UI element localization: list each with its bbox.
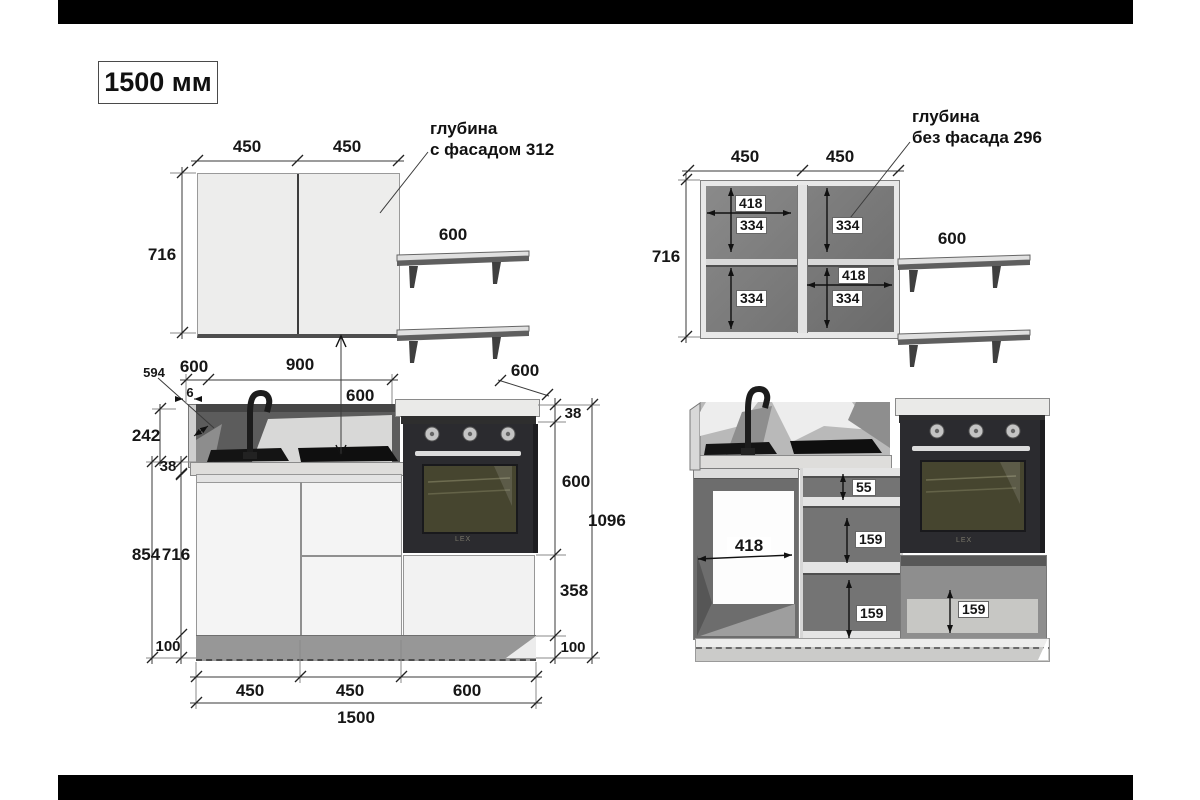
drawer-rail-1: [803, 468, 900, 478]
oven-column-countertop: [395, 399, 540, 417]
dim-wall-width-left: 450: [222, 138, 272, 156]
center-divider: [797, 185, 808, 333]
door-gap-vertical: [300, 482, 302, 636]
oven-open-drawer: [900, 555, 1047, 640]
dim-wall-open-width-right: 450: [815, 148, 865, 166]
oven-front: [403, 424, 538, 553]
dim-shelf-width: 600: [428, 226, 478, 244]
dim-counter-thickness: 38: [155, 459, 181, 475]
dim-base-width-1: 450: [225, 682, 275, 700]
dim-oven-counter-thickness: 38: [559, 406, 587, 422]
oven-column-countertop-open: [895, 398, 1050, 416]
note-line2: без фасада 296: [912, 128, 1042, 147]
note-depth-with-facade: глубина с фасадом 312: [430, 118, 554, 161]
note-depth-without-facade: глубина без фасада 296: [912, 106, 1042, 149]
dim-drawer-zone-height: 358: [554, 582, 594, 600]
base-cabinet-closed: [196, 474, 402, 637]
oven-handle: [415, 451, 521, 456]
oven-front-open-view: [900, 420, 1045, 553]
oven-window: [920, 460, 1026, 532]
top-rail: [197, 475, 401, 483]
dim-apron-height: 242: [128, 427, 164, 445]
dim-gap: 6: [183, 386, 197, 400]
dim-hang-height: 600: [346, 387, 390, 405]
dim-plinth-height-right: 100: [558, 640, 588, 656]
oven-handle: [912, 446, 1030, 451]
dim-total-width: 1500: [326, 709, 386, 727]
dim-inner-width-top-left: 418: [735, 195, 766, 212]
dim-drawer-2-height: 159: [856, 605, 887, 622]
wall-cabinet-closed: [197, 173, 400, 338]
title-box: 1500 мм: [98, 61, 218, 104]
plinth-open-view: [695, 638, 1050, 662]
note-line1: глубина: [430, 119, 497, 138]
dim-oven-height: 600: [556, 473, 596, 491]
splashback-open-view: [700, 402, 890, 455]
dim-total-height-right: 1096: [588, 512, 636, 530]
dim-base-width-3: 600: [442, 682, 492, 700]
dim-depth-left: 600: [172, 358, 216, 376]
drawer-rail-3: [803, 562, 900, 575]
wall-cabinet-open: [700, 180, 900, 339]
top-border-bar: [58, 0, 1133, 24]
splashback: [196, 404, 400, 462]
plinth-lower-strip: [696, 647, 1049, 661]
dim-wall-height: 716: [144, 246, 180, 264]
oven-window: [422, 464, 518, 534]
sink-cabinet-top-rail: [694, 469, 798, 479]
dim-inner-height-top-left: 334: [736, 217, 767, 234]
bottom-border-bar: [58, 775, 1133, 800]
oven-brand-label: LEX: [455, 536, 471, 543]
dim-top-gap: 55: [852, 479, 876, 496]
under-cabinet-shadow: [196, 404, 400, 412]
dim-shelf-width-open: 600: [927, 230, 977, 248]
kitchen-drawing-canvas: 1500 мм LEX: [0, 0, 1200, 800]
drawer-rail-2: [803, 497, 900, 508]
dim-carcass-height: 716: [158, 546, 194, 564]
title-text: 1500 мм: [104, 67, 212, 98]
dim-plinth-height-left: 100: [153, 639, 183, 655]
dim-inner-height-top-right: 334: [832, 217, 863, 234]
dim-drawer-1-height: 159: [855, 531, 886, 548]
dim-oven-drawer-height: 159: [958, 601, 989, 618]
drawer-shadow: [901, 556, 1046, 566]
dim-inner-width-bottom-right: 418: [838, 267, 869, 284]
oven-bottom-drawer-front: [403, 555, 535, 637]
dim-inner-height-bottom-right: 334: [832, 290, 863, 307]
dim-wall-open-height: 716: [648, 248, 684, 266]
dim-wall-width-right: 450: [322, 138, 372, 156]
door-gap: [297, 174, 299, 334]
door-gap-horizontal: [302, 555, 401, 557]
dim-apron-width: 900: [275, 356, 325, 374]
dim-base-width-2: 450: [325, 682, 375, 700]
plinth-closed: [196, 635, 536, 661]
dim-sink-cabinet-inner-width: 418: [727, 537, 771, 555]
oven-column-shadow-strip: [401, 416, 536, 424]
dim-inner-height-bottom-left: 334: [736, 290, 767, 307]
note-line2: с фасадом 312: [430, 140, 554, 159]
dim-side-panel-depth: 594: [137, 366, 171, 380]
dim-wall-open-width-left: 450: [720, 148, 770, 166]
oven-brand-label: LEX: [956, 537, 972, 544]
dim-oven-counter-depth: 600: [503, 362, 547, 380]
note-line1: глубина: [912, 107, 979, 126]
